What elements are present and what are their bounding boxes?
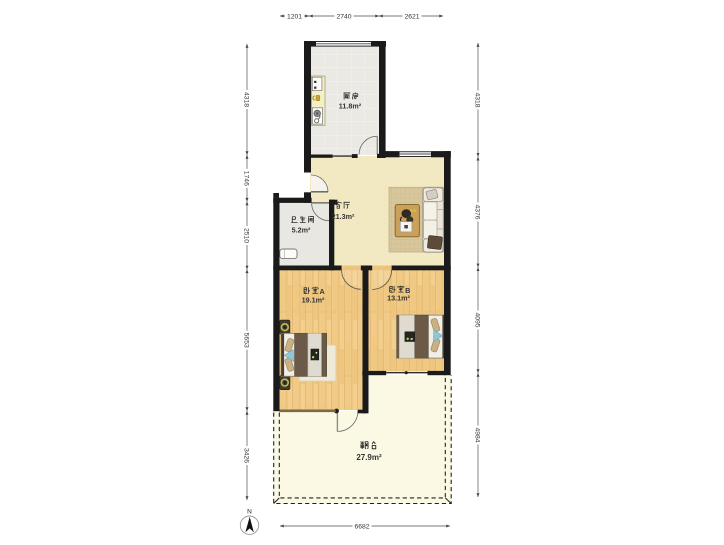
svg-text:2621: 2621 — [404, 14, 419, 21]
svg-text:2510: 2510 — [243, 228, 250, 243]
svg-text:4095: 4095 — [474, 312, 481, 327]
svg-text:21.3m²: 21.3m² — [332, 212, 355, 221]
svg-text:3426: 3426 — [243, 448, 250, 463]
svg-text:4318: 4318 — [474, 92, 481, 107]
svg-text:4376: 4376 — [474, 204, 481, 219]
svg-text:4984: 4984 — [474, 427, 481, 442]
svg-text:4318: 4318 — [243, 92, 250, 107]
svg-text:N: N — [247, 509, 252, 516]
svg-text:1746: 1746 — [243, 171, 250, 186]
svg-text:19.1m²: 19.1m² — [302, 296, 325, 305]
svg-text:5653: 5653 — [243, 333, 250, 348]
svg-text:1201: 1201 — [287, 14, 302, 21]
svg-text:13.1m²: 13.1m² — [387, 293, 410, 302]
svg-text:5.2m²: 5.2m² — [292, 225, 311, 234]
svg-text:27.9m²: 27.9m² — [356, 453, 382, 462]
svg-text:2740: 2740 — [336, 14, 351, 21]
svg-text:11.8m²: 11.8m² — [339, 101, 362, 110]
svg-text:6682: 6682 — [354, 524, 369, 531]
